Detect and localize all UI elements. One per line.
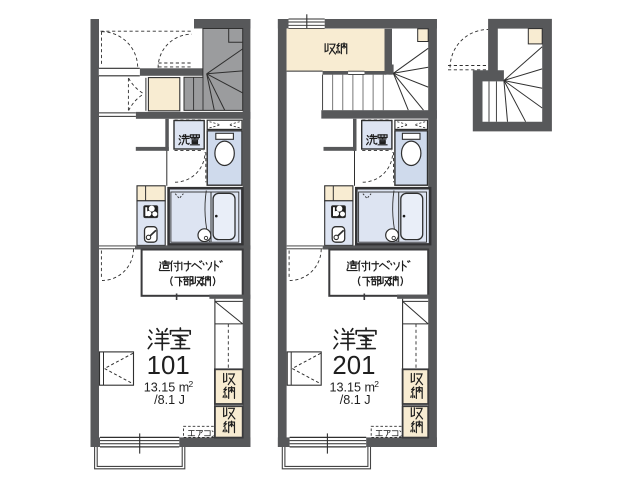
svg-text:2: 2 xyxy=(374,379,379,389)
svg-text:2: 2 xyxy=(189,379,194,389)
svg-text:101: 101 xyxy=(147,352,190,380)
svg-text:201: 201 xyxy=(332,352,375,380)
svg-text:/8.1 J: /8.1 J xyxy=(154,393,185,407)
svg-text:/8.1 J: /8.1 J xyxy=(340,393,371,407)
